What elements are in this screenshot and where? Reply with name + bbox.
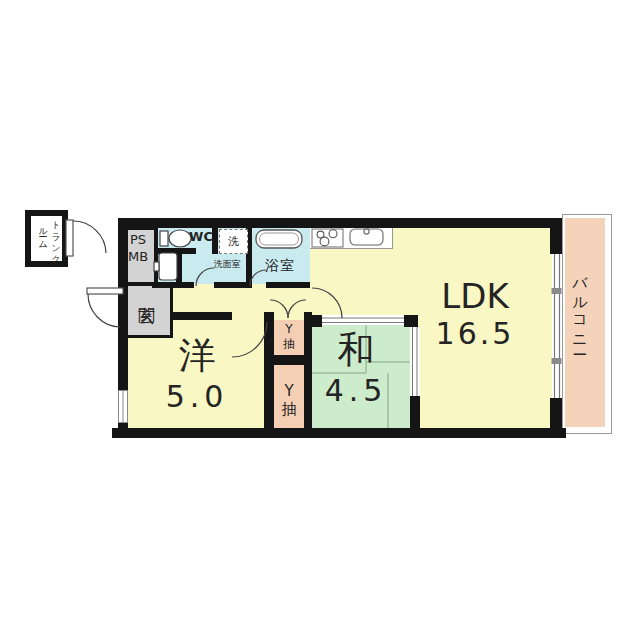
washbasin-icon <box>154 253 177 280</box>
closet-lower-label: Y 抽 <box>275 376 303 424</box>
trunk-room-label-col1: トランク <box>51 215 60 260</box>
entrance-label: 玄関 <box>138 293 155 297</box>
western-room-size: 5.0 <box>128 382 266 412</box>
closet-upper-char2: 抽 <box>283 336 295 353</box>
ldk-door-arc <box>312 288 342 318</box>
mb-label: MB <box>122 250 154 263</box>
closet-door-arc-left <box>270 300 288 318</box>
floor-plan: 洗 <box>0 0 640 640</box>
ldk-size: 16.5 <box>420 319 530 349</box>
closet-lower-char2: 抽 <box>282 400 297 419</box>
stove-icon <box>312 229 343 247</box>
closet-upper-char1: Y <box>285 322 292 336</box>
trunk-door-arc <box>73 221 106 253</box>
bathroom-door-arc <box>250 270 266 286</box>
closet-lower-char1: Y <box>284 382 293 400</box>
window-balcony <box>552 254 563 398</box>
bathtub-icon <box>256 230 302 248</box>
closet-upper-label: Y 抽 <box>275 320 303 355</box>
plan-linework <box>0 0 640 640</box>
kitchen-sink-icon <box>350 229 383 245</box>
bathroom-label: 浴室 <box>254 258 306 272</box>
trunk-room-label-col2: ルーム <box>38 221 47 244</box>
japanese-room-size: 4.5 <box>306 376 406 406</box>
toilet-icon <box>160 230 191 247</box>
japanese-room-label: 和 <box>306 331 406 368</box>
wc-label: WC <box>188 230 214 243</box>
ps-label: PS <box>122 233 154 246</box>
washroom-door-arc <box>196 268 214 286</box>
closet-door-arc-right <box>288 300 306 318</box>
washroom-label: 洗面室 <box>205 260 249 269</box>
western-room-label: 洋 <box>128 337 266 374</box>
balcony-label: バルコニー <box>572 266 587 349</box>
front-door-arc <box>88 294 120 327</box>
window-west <box>119 391 128 423</box>
ldk-label: LDK <box>420 279 530 313</box>
